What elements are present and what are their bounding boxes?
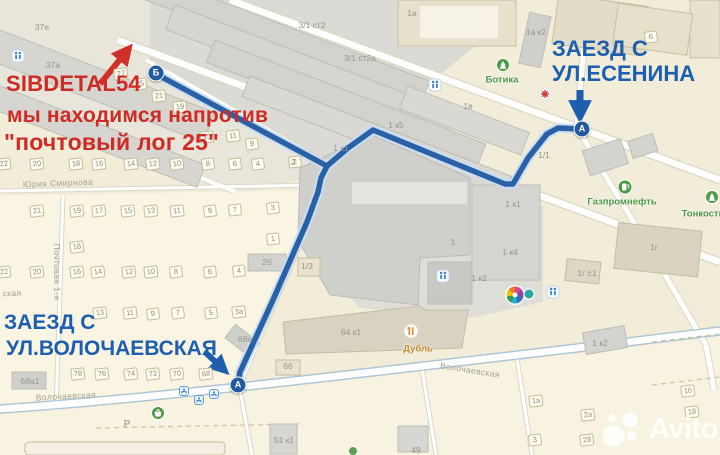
plot-number: 19 (69, 204, 85, 218)
restaurant-icon (404, 324, 419, 339)
plot-number: 8 (169, 265, 183, 278)
plot-number: 16 (69, 265, 85, 279)
building-label: 1 к4 (502, 247, 518, 257)
crosswalk-icon (437, 270, 450, 283)
plot-number: 3 (528, 433, 542, 446)
route-marker-А: А (574, 121, 591, 138)
crosswalk-icon (429, 79, 442, 92)
plot-number: 15 (120, 204, 136, 218)
plot-number: 17 (91, 204, 107, 218)
plot-number: 13 (143, 204, 159, 218)
annotation-line1: мы находимся напротив (7, 105, 268, 126)
building-label: 66 (283, 361, 292, 371)
plot-number: 20 (29, 157, 45, 171)
building-label: 1г (650, 242, 658, 252)
plot-number: 3а (231, 305, 247, 319)
plot-number: 5 (204, 306, 218, 319)
mall-icon (507, 287, 524, 304)
plot-number: 7 (228, 203, 242, 216)
red-burst-icon (539, 88, 552, 101)
plot-number: 6 (228, 157, 242, 170)
poi-label: Ботика (486, 75, 519, 86)
green-dot-icon (349, 447, 357, 455)
brand-label: SIBDETAL54 (6, 73, 141, 95)
plot-number: 14 (123, 157, 139, 171)
plot-number: 14 (90, 265, 106, 279)
poi-label: Тонкости (682, 209, 720, 220)
plot-number: 9 (245, 137, 259, 150)
street-label: Волочаевская (36, 389, 97, 402)
map-screenshot: 2220181614121086422725211915119211917151… (0, 0, 720, 455)
plot-number: 4 (251, 157, 265, 170)
avito-watermark: Avito (600, 408, 718, 450)
plot-number: 21 (151, 89, 167, 103)
teal-dot-icon (525, 290, 534, 299)
plot-number: 10 (169, 157, 185, 171)
street-label: Почтовая 1-я (52, 244, 62, 301)
plot-number: 22 (0, 265, 12, 279)
plot-number: 7 (171, 306, 185, 319)
plot-number: 12 (121, 265, 137, 279)
plot-number: 16 (680, 384, 696, 398)
plot-number: 10 (143, 265, 159, 279)
plot-number: 22 (0, 157, 12, 171)
plot-number: 11 (225, 129, 240, 143)
poi-label: Дубль (403, 344, 433, 355)
plot-number: 76 (94, 367, 110, 381)
building-label: 2 (291, 157, 296, 167)
entrance-top-line1: ЗАЕЗД С (552, 38, 648, 60)
avito-logo-icon (600, 408, 646, 450)
poi-label: Газпромнефть (587, 197, 656, 208)
plot-number: 1а (528, 394, 544, 408)
building-label: 68а1 (21, 376, 40, 386)
building-label: 1в (463, 101, 472, 111)
plot-number: 18 (68, 157, 84, 171)
tree-icon (705, 190, 719, 204)
transit-stop-icon (209, 389, 219, 399)
building-label: 49 (411, 445, 420, 455)
street-label: ская (2, 288, 21, 299)
plot-number: 8 (201, 157, 215, 170)
avito-watermark-text: Avito (649, 413, 718, 446)
tree-icon (496, 58, 510, 72)
plot-number: 18 (69, 240, 85, 254)
plot-number: 20 (29, 265, 45, 279)
plot-number: 1 (266, 232, 280, 245)
plot-number: 74 (123, 367, 139, 381)
plot-number: 9 (203, 204, 217, 217)
plot-number: 6 (203, 265, 217, 278)
plot-number: 2а (580, 408, 596, 422)
plot-number: 11 (122, 306, 137, 320)
building-label: 1 к1 (505, 199, 521, 209)
building-label: 1 к2 (471, 273, 487, 283)
plot-number: 21 (29, 204, 45, 218)
building-label: 1а (407, 8, 416, 18)
route-marker-Б: Б (148, 65, 165, 82)
building-label: 51 к1 (274, 435, 294, 445)
street-label: Юрия Смирнова (23, 177, 94, 189)
entrance-bottom-line2: УЛ.ВОЛОЧАЕВСКАЯ (6, 338, 217, 359)
building-label: 1г с1 (577, 268, 596, 278)
building-label: 1а к2 (526, 27, 546, 37)
plot-number: 9 (146, 307, 160, 320)
plot-number: 72 (145, 367, 161, 381)
street-label: Волочаевская (439, 360, 500, 379)
building-label: 37е (35, 22, 49, 32)
building-label: 1 (451, 237, 456, 247)
plot-number: 28 (579, 433, 595, 447)
transit-stop-icon (179, 386, 189, 396)
plot-number: 68 (198, 367, 214, 381)
plot-number: 12 (145, 157, 161, 171)
building-label: 64 к1 (341, 327, 361, 337)
transit-stop-icon (194, 395, 204, 405)
building-label: 1 к2 (592, 338, 608, 348)
building-label: 1 к1 (333, 143, 349, 153)
building-label: 2б (262, 257, 272, 267)
route-marker-А: А (230, 377, 247, 394)
entrance-bottom-line1: ЗАЕЗД С (4, 312, 95, 333)
building-label: 37а (46, 60, 60, 70)
building-label: 3/1 ст2 (298, 20, 325, 30)
crosswalk-icon (547, 286, 560, 299)
parking-icon: Р (124, 420, 131, 430)
plot-number: 16 (91, 157, 107, 171)
building-label: 3/1 ст2а (344, 53, 376, 63)
fuel-icon (618, 180, 633, 195)
building-label: 1/3 (301, 261, 313, 271)
plot-number: 70 (169, 367, 185, 381)
building-label: 1 к5 (388, 120, 404, 130)
plot-number: 11 (169, 204, 184, 218)
plot-number: 3 (266, 201, 280, 214)
basket-icon (151, 406, 165, 420)
entrance-top-line2: УЛ.ЕСЕНИНА (552, 63, 695, 85)
building-label: 1/1 (538, 150, 550, 160)
plot-number: 4 (232, 264, 246, 277)
building-label: 68а (238, 334, 252, 344)
crosswalk-icon (12, 50, 25, 63)
plot-number: 78 (70, 367, 86, 381)
annotation-line2: "почтовый лог 25" (4, 131, 219, 154)
